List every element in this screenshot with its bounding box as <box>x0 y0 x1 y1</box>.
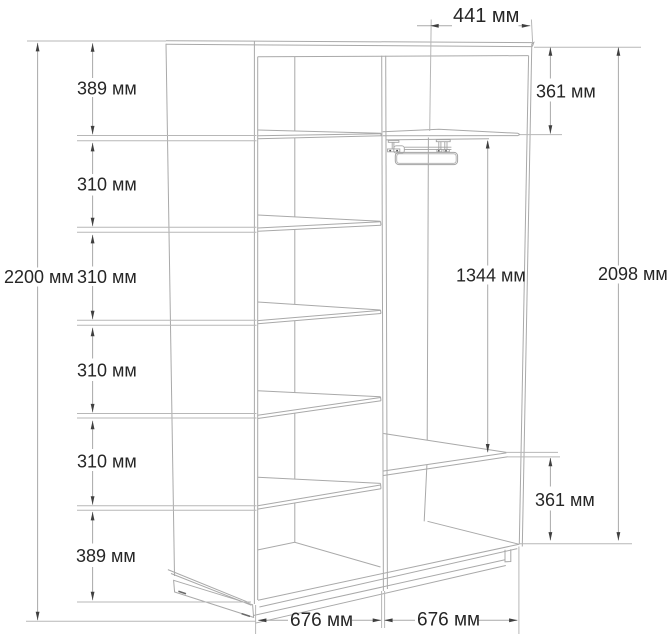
svg-text:676 мм: 676 мм <box>417 610 480 631</box>
svg-text:361 мм: 361 мм <box>535 490 595 510</box>
svg-text:310 мм: 310 мм <box>77 267 137 287</box>
svg-text:361 мм: 361 мм <box>536 82 596 102</box>
svg-text:2200 мм: 2200 мм <box>4 267 74 287</box>
svg-text:310 мм: 310 мм <box>77 175 137 195</box>
svg-text:310 мм: 310 мм <box>77 361 137 381</box>
svg-text:2098 мм: 2098 мм <box>598 264 667 284</box>
svg-text:676 мм: 676 мм <box>290 610 353 631</box>
svg-text:389 мм: 389 мм <box>77 79 137 99</box>
svg-text:389 мм: 389 мм <box>76 546 136 566</box>
svg-text:310 мм: 310 мм <box>77 452 137 472</box>
svg-text:1344 мм: 1344 мм <box>456 266 526 286</box>
svg-text:441 мм: 441 мм <box>453 5 519 27</box>
